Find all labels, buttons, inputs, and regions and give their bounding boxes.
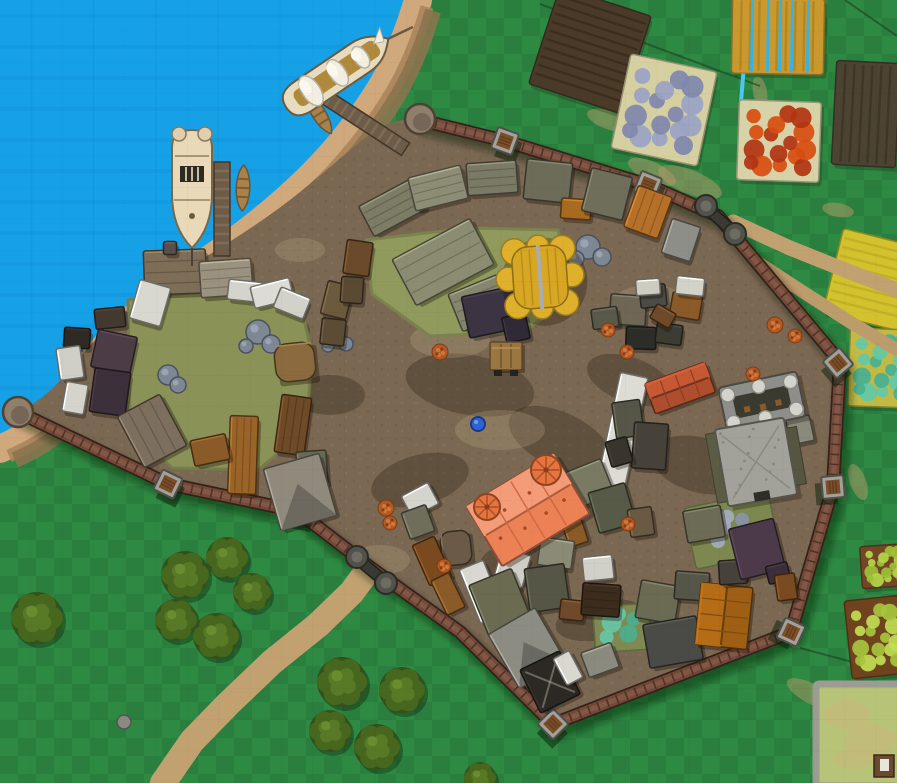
map-viewport[interactable] <box>0 0 897 783</box>
map-canvas[interactable] <box>0 0 897 783</box>
map-grid-overlay <box>0 0 897 783</box>
map-canvas-container[interactable] <box>0 0 897 783</box>
